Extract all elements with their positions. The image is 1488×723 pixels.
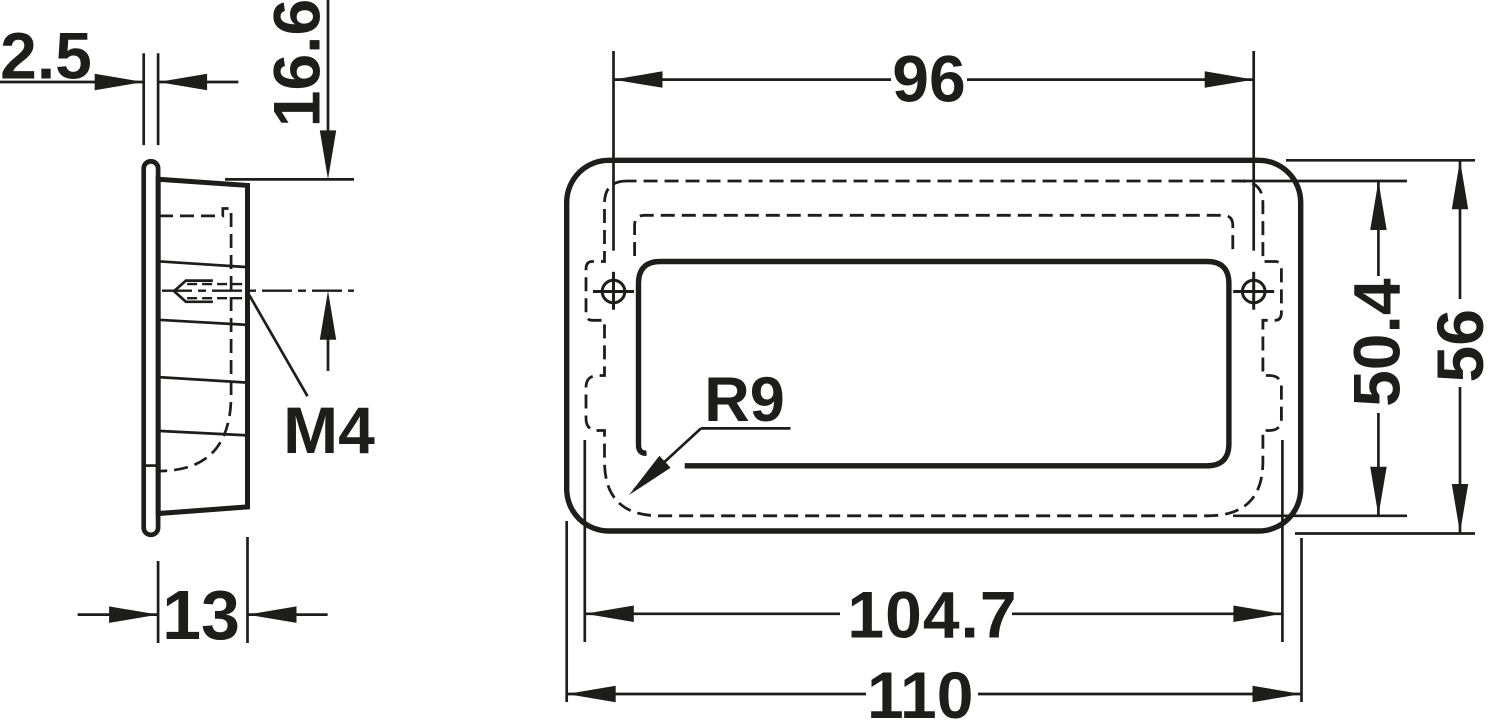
svg-text:56: 56 xyxy=(1423,309,1488,382)
svg-text:13: 13 xyxy=(162,576,240,654)
svg-text:104.7: 104.7 xyxy=(847,578,1017,652)
svg-text:50.4: 50.4 xyxy=(1340,278,1414,407)
svg-text:M4: M4 xyxy=(283,393,375,467)
svg-text:R9: R9 xyxy=(704,365,785,435)
svg-text:110: 110 xyxy=(867,658,973,723)
svg-text:96: 96 xyxy=(892,42,965,116)
svg-text:16.6: 16.6 xyxy=(260,0,334,127)
